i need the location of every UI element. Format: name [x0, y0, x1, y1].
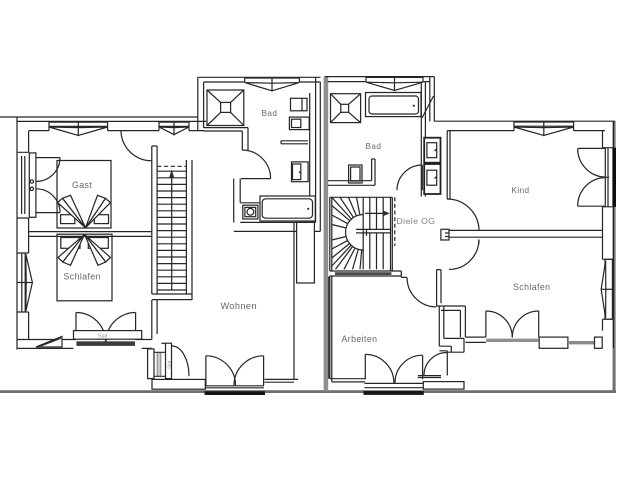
svg-text:Wohnen: Wohnen: [221, 301, 257, 311]
svg-text:Bad: Bad: [366, 142, 382, 151]
svg-text:Gast: Gast: [72, 180, 92, 190]
svg-text:Diele OG: Diele OG: [397, 216, 436, 226]
svg-text:Arbeiten: Arbeiten: [342, 334, 378, 344]
svg-text:Schlafen: Schlafen: [64, 272, 101, 282]
svg-text:Süd: Süd: [166, 360, 171, 369]
svg-text:Schlafen: Schlafen: [513, 282, 550, 292]
svg-text:Kind: Kind: [512, 186, 530, 195]
svg-text:Süd: Süd: [98, 334, 107, 340]
svg-text:Bad: Bad: [262, 109, 278, 118]
